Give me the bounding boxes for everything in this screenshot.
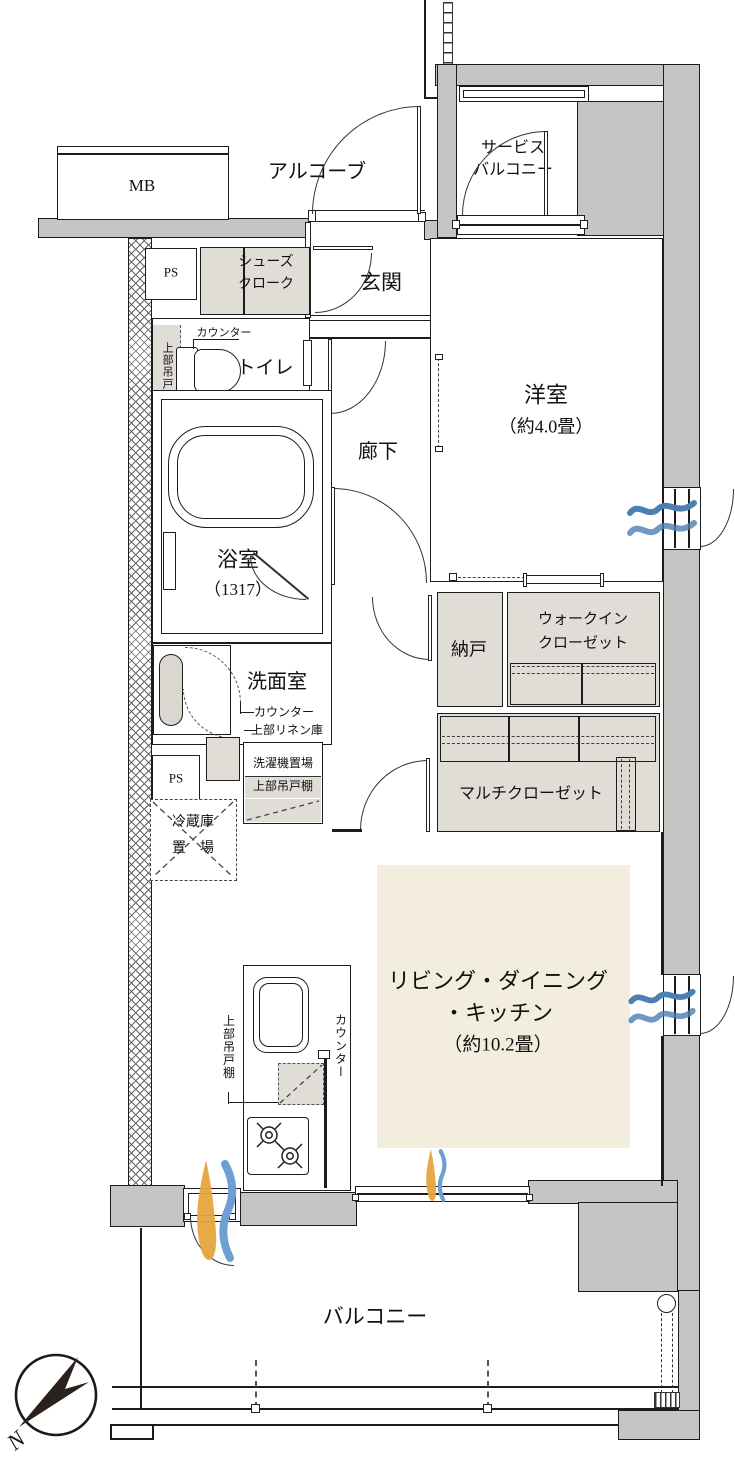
- laundry-upper-cabinet-label: 上部吊戸棚: [253, 779, 313, 795]
- washroom-counter-label: カウンター: [254, 705, 314, 721]
- hatched-wall: [128, 238, 152, 1186]
- washroom-label: 洗面室: [247, 669, 307, 695]
- cabinet-diagonal-icon: [279, 1064, 323, 1104]
- multi-closet-label: マルチクローゼット: [459, 785, 603, 806]
- balcony-outer-line: [110, 1424, 618, 1426]
- ldk-size-label: （約10.2畳）: [443, 1034, 552, 1059]
- kitchen-hatch-cabinet: [278, 1063, 324, 1105]
- balcony-side-line: [140, 1228, 142, 1408]
- meter-box-louver-line: [57, 153, 229, 155]
- hanger-divider: [578, 716, 580, 762]
- hanger-divider: [581, 663, 583, 705]
- refrigerator-label: 冷蔵庫: [172, 814, 214, 832]
- corridor-label: 廊下: [358, 439, 398, 465]
- window-end: [580, 220, 588, 229]
- counter-leader-line: [193, 339, 239, 340]
- toilet-counter-label: カウンター: [197, 326, 252, 340]
- toilet-label: トイレ: [236, 357, 293, 382]
- window-swing-arc: [700, 976, 734, 1034]
- wall: [663, 549, 700, 977]
- hanger-pipe: [442, 736, 654, 744]
- floor-plan: MB PS PS アルコーブ 玄関 シューズ クローク サービス バルコニー 上…: [0, 0, 735, 1460]
- closet-opening-dashed: [438, 358, 440, 448]
- balcony-label: バルコニー: [323, 1303, 428, 1330]
- wall: [437, 64, 457, 238]
- storage-door-arc: [372, 597, 430, 660]
- wall: [240, 1192, 357, 1226]
- drain-line-dashed: [661, 1313, 662, 1393]
- ldk-label: リビング・ダイニング: [388, 968, 608, 997]
- wall: [435, 64, 697, 86]
- toilet-bowl: [194, 349, 241, 393]
- storage-label: 納戸: [451, 638, 487, 661]
- washroom-cabinet: [206, 737, 240, 781]
- wall: [528, 1180, 678, 1204]
- storage-door-leaf: [428, 595, 432, 661]
- opening-end: [449, 573, 457, 581]
- western-room-size-label: （約4.0畳）: [499, 415, 594, 438]
- wave-icon: [626, 496, 698, 546]
- entrance-door-leaf: [313, 246, 373, 250]
- laundry-lower-cabinet: [245, 799, 321, 822]
- wall: [38, 218, 310, 238]
- counter-leader-line: [240, 702, 241, 714]
- wall: [578, 1202, 678, 1292]
- balcony-partition-icon: [443, 2, 453, 64]
- opening-end: [435, 354, 443, 360]
- kitchen-counter-label: カウンター: [333, 1014, 350, 1079]
- pipe-space-label: PS: [164, 265, 178, 282]
- washroom-door-arc: [333, 488, 427, 583]
- wave-icon: [626, 985, 698, 1033]
- compass-north-label: N: [6, 1425, 31, 1452]
- airflow-flame-icon: [413, 1148, 459, 1202]
- kitchen-sink-inner: [259, 983, 303, 1047]
- side-hanger-pipe: [621, 759, 630, 829]
- cabinet-diagonal-icon: [245, 799, 321, 822]
- ldk-door-leaf: [426, 758, 430, 832]
- closet-opening-dashed: [453, 577, 525, 579]
- entrance-door-arc: [315, 253, 372, 313]
- balcony-divider-dashed: [487, 1360, 489, 1408]
- service-balcony-door-arc: [462, 131, 546, 215]
- window-mid-line: [457, 224, 585, 226]
- toilet-door-arc: [330, 341, 386, 414]
- wall: [577, 101, 674, 236]
- opening-end: [435, 446, 443, 452]
- service-balcony-door-leaf: [544, 131, 548, 216]
- ldk-label: ・キッチン: [443, 1000, 553, 1029]
- sliding-door: [525, 575, 603, 584]
- washroom-door-leaf: [331, 487, 335, 585]
- wall: [424, 220, 438, 240]
- kitchen-counter-cap: [318, 1050, 330, 1059]
- sliding-door-end: [600, 573, 604, 587]
- western-room-label: 洋室: [524, 382, 568, 411]
- walk-in-closet-label: クローゼット: [538, 634, 628, 654]
- window-end: [452, 220, 460, 229]
- shoes-closet-label: クローク: [238, 276, 294, 294]
- ldk-door-arc: [360, 760, 428, 830]
- hanger-pipe: [512, 666, 654, 674]
- laundry-label: 洗濯機置場: [253, 756, 313, 772]
- airflow-flame-icon: [192, 1158, 240, 1262]
- balcony-divider-dashed: [255, 1360, 257, 1408]
- meter-box-label: MB: [129, 175, 155, 197]
- sliding-door-end: [523, 573, 527, 587]
- balcony-outer-line: [110, 1438, 154, 1440]
- pipe-space-label: PS: [169, 771, 183, 788]
- hanger-divider: [508, 716, 510, 762]
- balcony-railing-line: [112, 1386, 678, 1388]
- drain-grate-icon: [654, 1392, 680, 1408]
- balcony-outer-line: [110, 1424, 112, 1440]
- entrance-step: [310, 315, 430, 321]
- service-balcony-railing-inner: [463, 90, 585, 98]
- gas-burner-icon: [252, 1121, 306, 1171]
- wall: [618, 1410, 700, 1440]
- counter-leader-line: [240, 712, 254, 713]
- exterior-outline: [424, 0, 426, 98]
- balcony-railing-line: [112, 1408, 678, 1410]
- front-door-arc: [312, 106, 420, 214]
- refrigerator-label: 置 場: [172, 840, 214, 858]
- window-end: [526, 1194, 533, 1201]
- counter-leader-line: [193, 339, 194, 349]
- linen-leader-line: [244, 730, 256, 731]
- compass-north-icon: N: [6, 1348, 106, 1452]
- exterior-outline: [424, 97, 438, 99]
- toilet-door: [303, 340, 312, 386]
- divider-base: [251, 1404, 260, 1413]
- corridor-ldk-wall: [332, 829, 362, 832]
- window-end: [352, 1194, 359, 1201]
- bath-counter: [163, 532, 176, 590]
- drain-pipe-icon: [657, 1294, 676, 1313]
- walk-in-closet-label: ウォークイン: [538, 610, 628, 630]
- divider-base: [483, 1404, 492, 1413]
- drain-line-dashed: [672, 1313, 673, 1393]
- ldk-east-wall-line: [661, 1036, 663, 1186]
- front-door-leaf: [417, 106, 421, 214]
- bathtub-inner: [177, 435, 305, 519]
- kitchen-counter-line: [324, 1056, 327, 1188]
- upper-linen-label: 上部リネン庫: [251, 723, 323, 739]
- wall: [663, 64, 700, 490]
- window-swing-arc: [700, 489, 734, 547]
- wall: [110, 1185, 185, 1227]
- shoes-closet-label: シューズ: [238, 254, 293, 272]
- vanity-basin: [159, 654, 183, 726]
- kitchen-upper-cabinet-label: 上部吊戸棚: [221, 1015, 238, 1080]
- ldk-east-wall-line: [661, 832, 663, 975]
